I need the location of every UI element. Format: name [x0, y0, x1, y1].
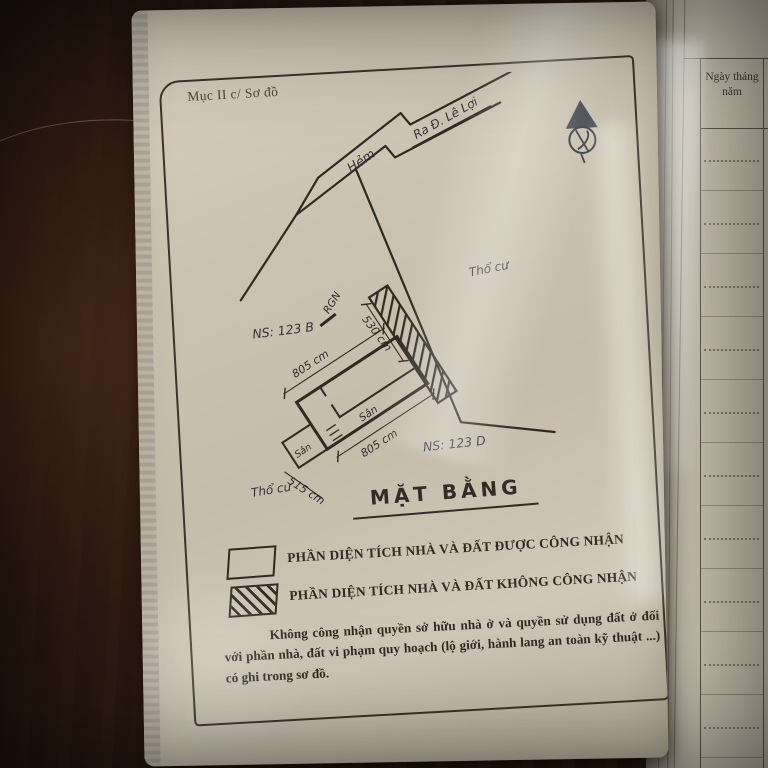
land-note-tho-cu: Thổ cư — [250, 479, 293, 499]
table-row — [700, 506, 763, 569]
table-row — [700, 443, 763, 506]
north-arrow-icon — [564, 99, 599, 164]
house-internal-wall — [320, 387, 340, 417]
table-row — [700, 128, 763, 191]
table-row — [700, 758, 763, 768]
house-internal-wall — [340, 367, 417, 417]
alley-left-cap — [294, 178, 320, 215]
site-plan-drawing: 805 cm 805 cm 530 cm 515 cm Sân Sân RGN … — [161, 65, 655, 539]
table-rows — [700, 128, 763, 768]
legend-label: PHẦN DIỆN TÍCH NHÀ VÀ ĐẤT ĐƯỢC CÔNG NHẬN — [287, 531, 624, 566]
house-stairs-detail — [327, 425, 342, 441]
alley-upper-edge — [313, 72, 516, 178]
dimension-line-top — [284, 328, 384, 394]
date-column-header: Ngày tháng năm — [702, 70, 762, 124]
table-row — [700, 632, 763, 695]
plot-left-boundary — [236, 215, 300, 300]
table-row — [700, 380, 763, 443]
dim-bottom-label: 805 cm — [358, 427, 400, 460]
alley-lower-edge — [290, 103, 505, 216]
table-row — [700, 191, 763, 254]
table-row — [700, 695, 763, 758]
annex-yard-label: Sân — [293, 442, 314, 461]
table-right-border — [763, 58, 764, 768]
house-number-123d: NS: 123 D — [422, 433, 487, 455]
dimension-line-bottom — [337, 394, 434, 458]
table-row — [700, 569, 763, 632]
plastic-sleeve-page: Mục II c/ Sơ đồ — [131, 1, 668, 766]
boundary-tick — [320, 314, 337, 326]
legend-swatch-hatched — [229, 583, 279, 618]
boundary-label: RGN — [321, 290, 344, 316]
alley-label: Hẻm — [345, 147, 379, 177]
table-row — [700, 317, 763, 380]
dim-left-label: 515 cm — [285, 474, 327, 507]
land-note-tho-cu: Thổ cư — [468, 258, 512, 280]
dim-top-label: 805 cm — [290, 347, 332, 380]
table-row — [700, 254, 763, 317]
legend-swatch-empty — [226, 545, 276, 580]
legend: PHẦN DIỆN TÍCH NHÀ VÀ ĐẤT ĐƯỢC CÔNG NHẬN… — [227, 523, 651, 622]
photo-of-document: { "page": { "section_label": "Mục II c/ … — [0, 0, 768, 768]
house-number-123b: NS: 123 B — [251, 319, 314, 342]
document-border-frame: Mục II c/ Sơ đồ — [158, 55, 668, 727]
